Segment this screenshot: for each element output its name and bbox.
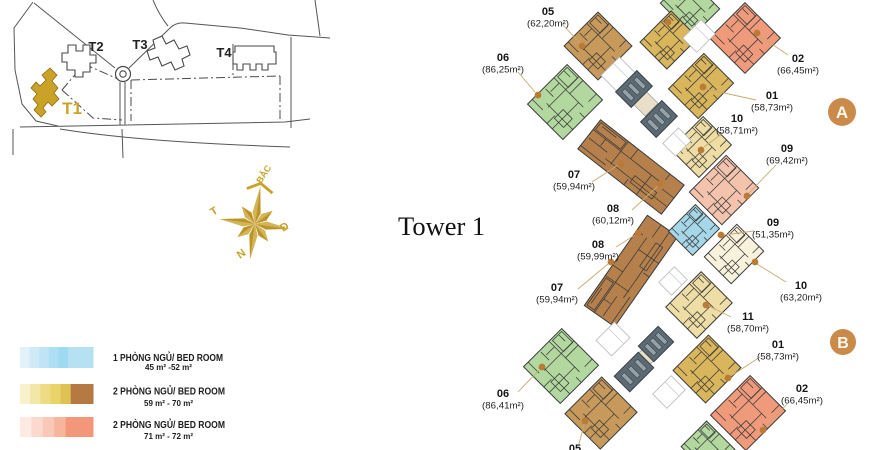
svg-text:08: 08 [607, 203, 619, 215]
svg-text:(58,73m²): (58,73m²) [757, 352, 799, 363]
svg-text:(66,45m²): (66,45m²) [781, 396, 823, 407]
svg-text:71 m² - 72 m²: 71 m² - 72 m² [144, 431, 193, 441]
svg-text:11: 11 [742, 311, 754, 323]
svg-text:02: 02 [796, 383, 808, 395]
svg-text:06: 06 [497, 52, 509, 64]
svg-text:01: 01 [766, 90, 778, 102]
svg-text:(58,70m²): (58,70m²) [727, 324, 769, 335]
svg-text:B: B [837, 335, 849, 352]
svg-text:07: 07 [568, 169, 580, 181]
svg-text:(59,94m²): (59,94m²) [536, 295, 578, 306]
svg-text:07: 07 [551, 282, 563, 294]
svg-text:(59,94m²): (59,94m²) [553, 182, 595, 193]
svg-text:09: 09 [781, 143, 793, 155]
svg-text:(51,35m²): (51,35m²) [752, 230, 794, 241]
svg-text:09: 09 [767, 217, 779, 229]
svg-text:(63,20m²): (63,20m²) [780, 293, 822, 304]
svg-text:10: 10 [795, 280, 807, 292]
svg-text:06: 06 [497, 388, 509, 400]
svg-text:59 m² - 70 m²: 59 m² - 70 m² [144, 398, 193, 408]
svg-text:T1: T1 [62, 99, 82, 118]
svg-text:2 PHÒNG NGỦ/ BED ROOM: 2 PHÒNG NGỦ/ BED ROOM [113, 385, 225, 398]
svg-text:05: 05 [569, 443, 581, 450]
svg-text:(86,25m²): (86,25m²) [482, 65, 524, 76]
svg-text:45 m² -52 m²: 45 m² -52 m² [145, 362, 192, 372]
svg-text:02: 02 [792, 53, 804, 65]
svg-text:08: 08 [592, 239, 604, 251]
svg-text:T4: T4 [216, 45, 232, 60]
svg-text:T2: T2 [88, 39, 103, 54]
svg-text:(66,45m²): (66,45m²) [777, 66, 819, 77]
svg-text:T3: T3 [132, 37, 147, 52]
svg-text:A: A [836, 103, 848, 122]
svg-text:2 PHÒNG NGỦ/ BED ROOM: 2 PHÒNG NGỦ/ BED ROOM [113, 418, 225, 431]
svg-text:(60,12m²): (60,12m²) [592, 216, 634, 227]
svg-text:10: 10 [731, 113, 743, 125]
svg-text:05: 05 [542, 6, 554, 18]
svg-text:(86,41m²): (86,41m²) [482, 401, 524, 412]
svg-text:(58,73m²): (58,73m²) [751, 103, 793, 114]
svg-text:(58,71m²): (58,71m²) [716, 126, 758, 137]
svg-text:Tower 1: Tower 1 [398, 211, 485, 241]
svg-text:(62,20m²): (62,20m²) [527, 19, 569, 30]
svg-text:(69,42m²): (69,42m²) [766, 156, 808, 167]
svg-text:01: 01 [772, 339, 784, 351]
svg-text:(59,99m²): (59,99m²) [577, 252, 619, 263]
